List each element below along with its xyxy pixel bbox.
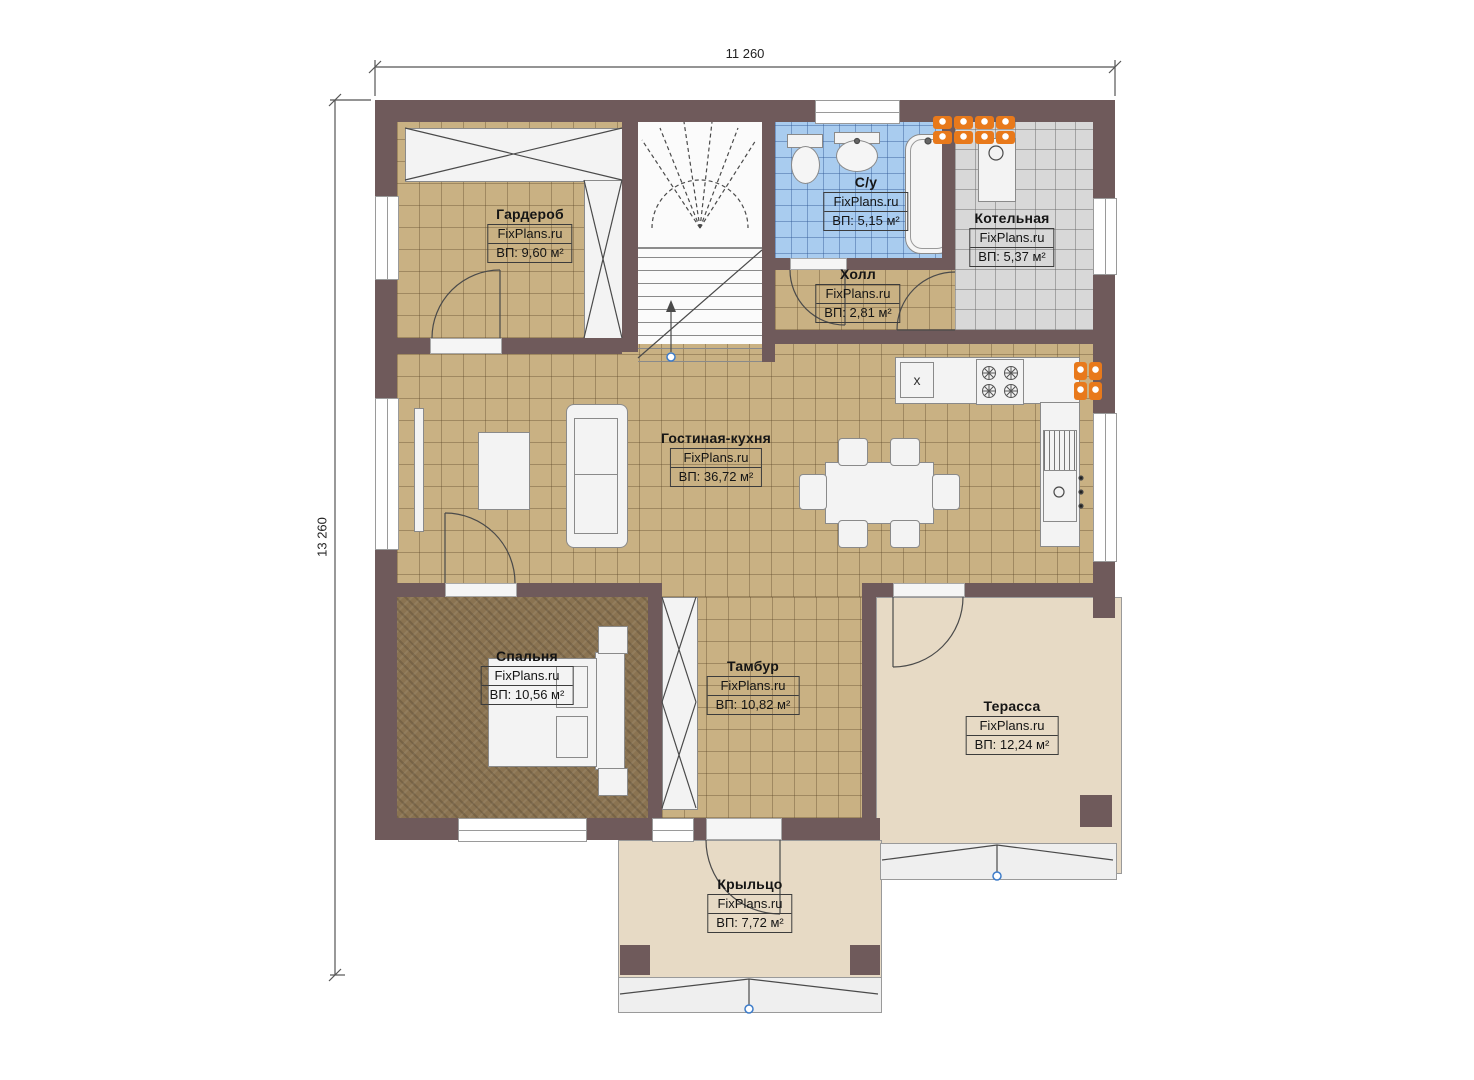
kitchen-sink-unit bbox=[1043, 470, 1077, 522]
room-label-living-kitchen: Гостиная-кухня FixPlans.ru ВП: 36,72 м² bbox=[661, 430, 771, 487]
room-area: ВП: 10,56 м² bbox=[482, 686, 573, 704]
room-label-terrace: Терасса FixPlans.ru ВП: 12,24 м² bbox=[966, 698, 1059, 755]
brand-watermark: FixPlans.ru bbox=[824, 193, 907, 212]
dining-table bbox=[825, 462, 934, 524]
window-right-kitchen bbox=[1093, 413, 1117, 562]
wall-bath-boiler bbox=[942, 122, 955, 270]
nightstand bbox=[598, 768, 628, 796]
wardrobe-cabinet-side bbox=[584, 180, 624, 340]
boiler-unit bbox=[978, 138, 1016, 202]
window-left-wardrobe bbox=[375, 196, 399, 280]
brand-watermark: FixPlans.ru bbox=[816, 285, 899, 304]
dining-chair bbox=[932, 474, 960, 510]
wall-hall-bottom bbox=[762, 330, 1093, 344]
kitchen-sink-icon: x bbox=[900, 362, 934, 398]
room-area: ВП: 10,82 м² bbox=[708, 696, 799, 714]
staircase-treads bbox=[638, 245, 762, 362]
door-opening-porch bbox=[706, 818, 782, 840]
dining-chair bbox=[838, 520, 868, 548]
brand-watermark: FixPlans.ru bbox=[671, 449, 762, 468]
room-name: Гостиная-кухня bbox=[661, 430, 771, 446]
room-area: ВП: 2,81 м² bbox=[816, 304, 899, 322]
window-bottom-vestibule bbox=[652, 818, 694, 842]
tv-cabinet bbox=[414, 408, 424, 532]
wall-exterior-bottom bbox=[375, 818, 880, 840]
radiator-icon bbox=[933, 116, 1015, 144]
wall-vestibule-terrace bbox=[862, 583, 876, 818]
room-name: Холл bbox=[815, 266, 900, 282]
room-name: Спальня bbox=[481, 648, 574, 664]
room-area: ВП: 7,72 м² bbox=[708, 914, 791, 932]
wall-wardrobe-stairs bbox=[622, 122, 638, 352]
room-label-bathroom: С/у FixPlans.ru ВП: 5,15 м² bbox=[823, 174, 908, 231]
sofa-cushion-divider bbox=[574, 474, 618, 475]
room-area: ВП: 5,37 м² bbox=[970, 248, 1053, 266]
toilet-icon bbox=[791, 146, 820, 184]
window-right-boiler bbox=[1093, 198, 1117, 275]
coffee-table bbox=[478, 432, 530, 510]
door-opening-wardrobe bbox=[430, 338, 502, 354]
room-area: ВП: 36,72 м² bbox=[671, 468, 762, 486]
wall-stairs-bath bbox=[762, 122, 775, 362]
vestibule-wardrobe bbox=[662, 597, 698, 810]
porch-steps bbox=[618, 977, 882, 1013]
room-name: С/у bbox=[823, 174, 908, 190]
radiator-icon bbox=[1074, 362, 1102, 400]
wall-bedroom-top bbox=[397, 583, 648, 597]
brand-watermark: FixPlans.ru bbox=[488, 225, 571, 244]
door-opening-bedroom bbox=[445, 583, 517, 597]
room-name: Котельная bbox=[969, 210, 1054, 226]
window-left-living bbox=[375, 398, 399, 550]
dining-chair bbox=[890, 438, 920, 466]
brand-watermark: FixPlans.ru bbox=[708, 677, 799, 696]
brand-watermark: FixPlans.ru bbox=[970, 229, 1053, 248]
terrace-steps bbox=[880, 843, 1117, 880]
room-name: Гардероб bbox=[487, 206, 572, 222]
dining-chair bbox=[890, 520, 920, 548]
room-label-boiler-room: Котельная FixPlans.ru ВП: 5,37 м² bbox=[969, 210, 1054, 267]
dimension-height: 13 260 bbox=[315, 517, 330, 557]
dining-chair bbox=[799, 474, 827, 510]
brand-watermark: FixPlans.ru bbox=[708, 895, 791, 914]
window-top bbox=[815, 100, 900, 124]
room-name: Терасса bbox=[966, 698, 1059, 714]
room-label-wardrobe: Гардероб FixPlans.ru ВП: 9,60 м² bbox=[487, 206, 572, 263]
room-name: Крыльцо bbox=[707, 876, 792, 892]
room-label-porch: Крыльцо FixPlans.ru ВП: 7,72 м² bbox=[707, 876, 792, 933]
dimension-width: 11 260 bbox=[726, 46, 765, 61]
dishwasher-icon bbox=[1043, 430, 1077, 472]
room-label-vestibule: Тамбур FixPlans.ru ВП: 10,82 м² bbox=[707, 658, 800, 715]
room-area: ВП: 9,60 м² bbox=[488, 244, 571, 262]
nightstand bbox=[598, 626, 628, 654]
dining-chair bbox=[838, 438, 868, 466]
sofa-cushions bbox=[574, 418, 618, 534]
porch-pillar bbox=[850, 945, 880, 975]
bed-headboard bbox=[595, 652, 625, 770]
room-area: ВП: 5,15 м² bbox=[824, 212, 907, 230]
floor-plan: x bbox=[0, 0, 1474, 1080]
brand-watermark: FixPlans.ru bbox=[482, 667, 573, 686]
wardrobe-cabinet-top bbox=[405, 128, 624, 182]
bathroom-sink-icon bbox=[836, 140, 878, 172]
door-opening-terrace bbox=[893, 583, 965, 597]
brand-watermark: FixPlans.ru bbox=[967, 717, 1058, 736]
window-bottom-bedroom bbox=[458, 818, 587, 842]
stove-icon bbox=[976, 359, 1024, 405]
room-name: Тамбур bbox=[707, 658, 800, 674]
wall-bedroom-vestibule bbox=[648, 583, 662, 818]
pillow bbox=[556, 716, 588, 758]
room-label-bedroom: Спальня FixPlans.ru ВП: 10,56 м² bbox=[481, 648, 574, 705]
porch-pillar bbox=[620, 945, 650, 975]
room-label-hall: Холл FixPlans.ru ВП: 2,81 м² bbox=[815, 266, 900, 323]
terrace-pillar bbox=[1080, 795, 1112, 827]
room-area: ВП: 12,24 м² bbox=[967, 736, 1058, 754]
